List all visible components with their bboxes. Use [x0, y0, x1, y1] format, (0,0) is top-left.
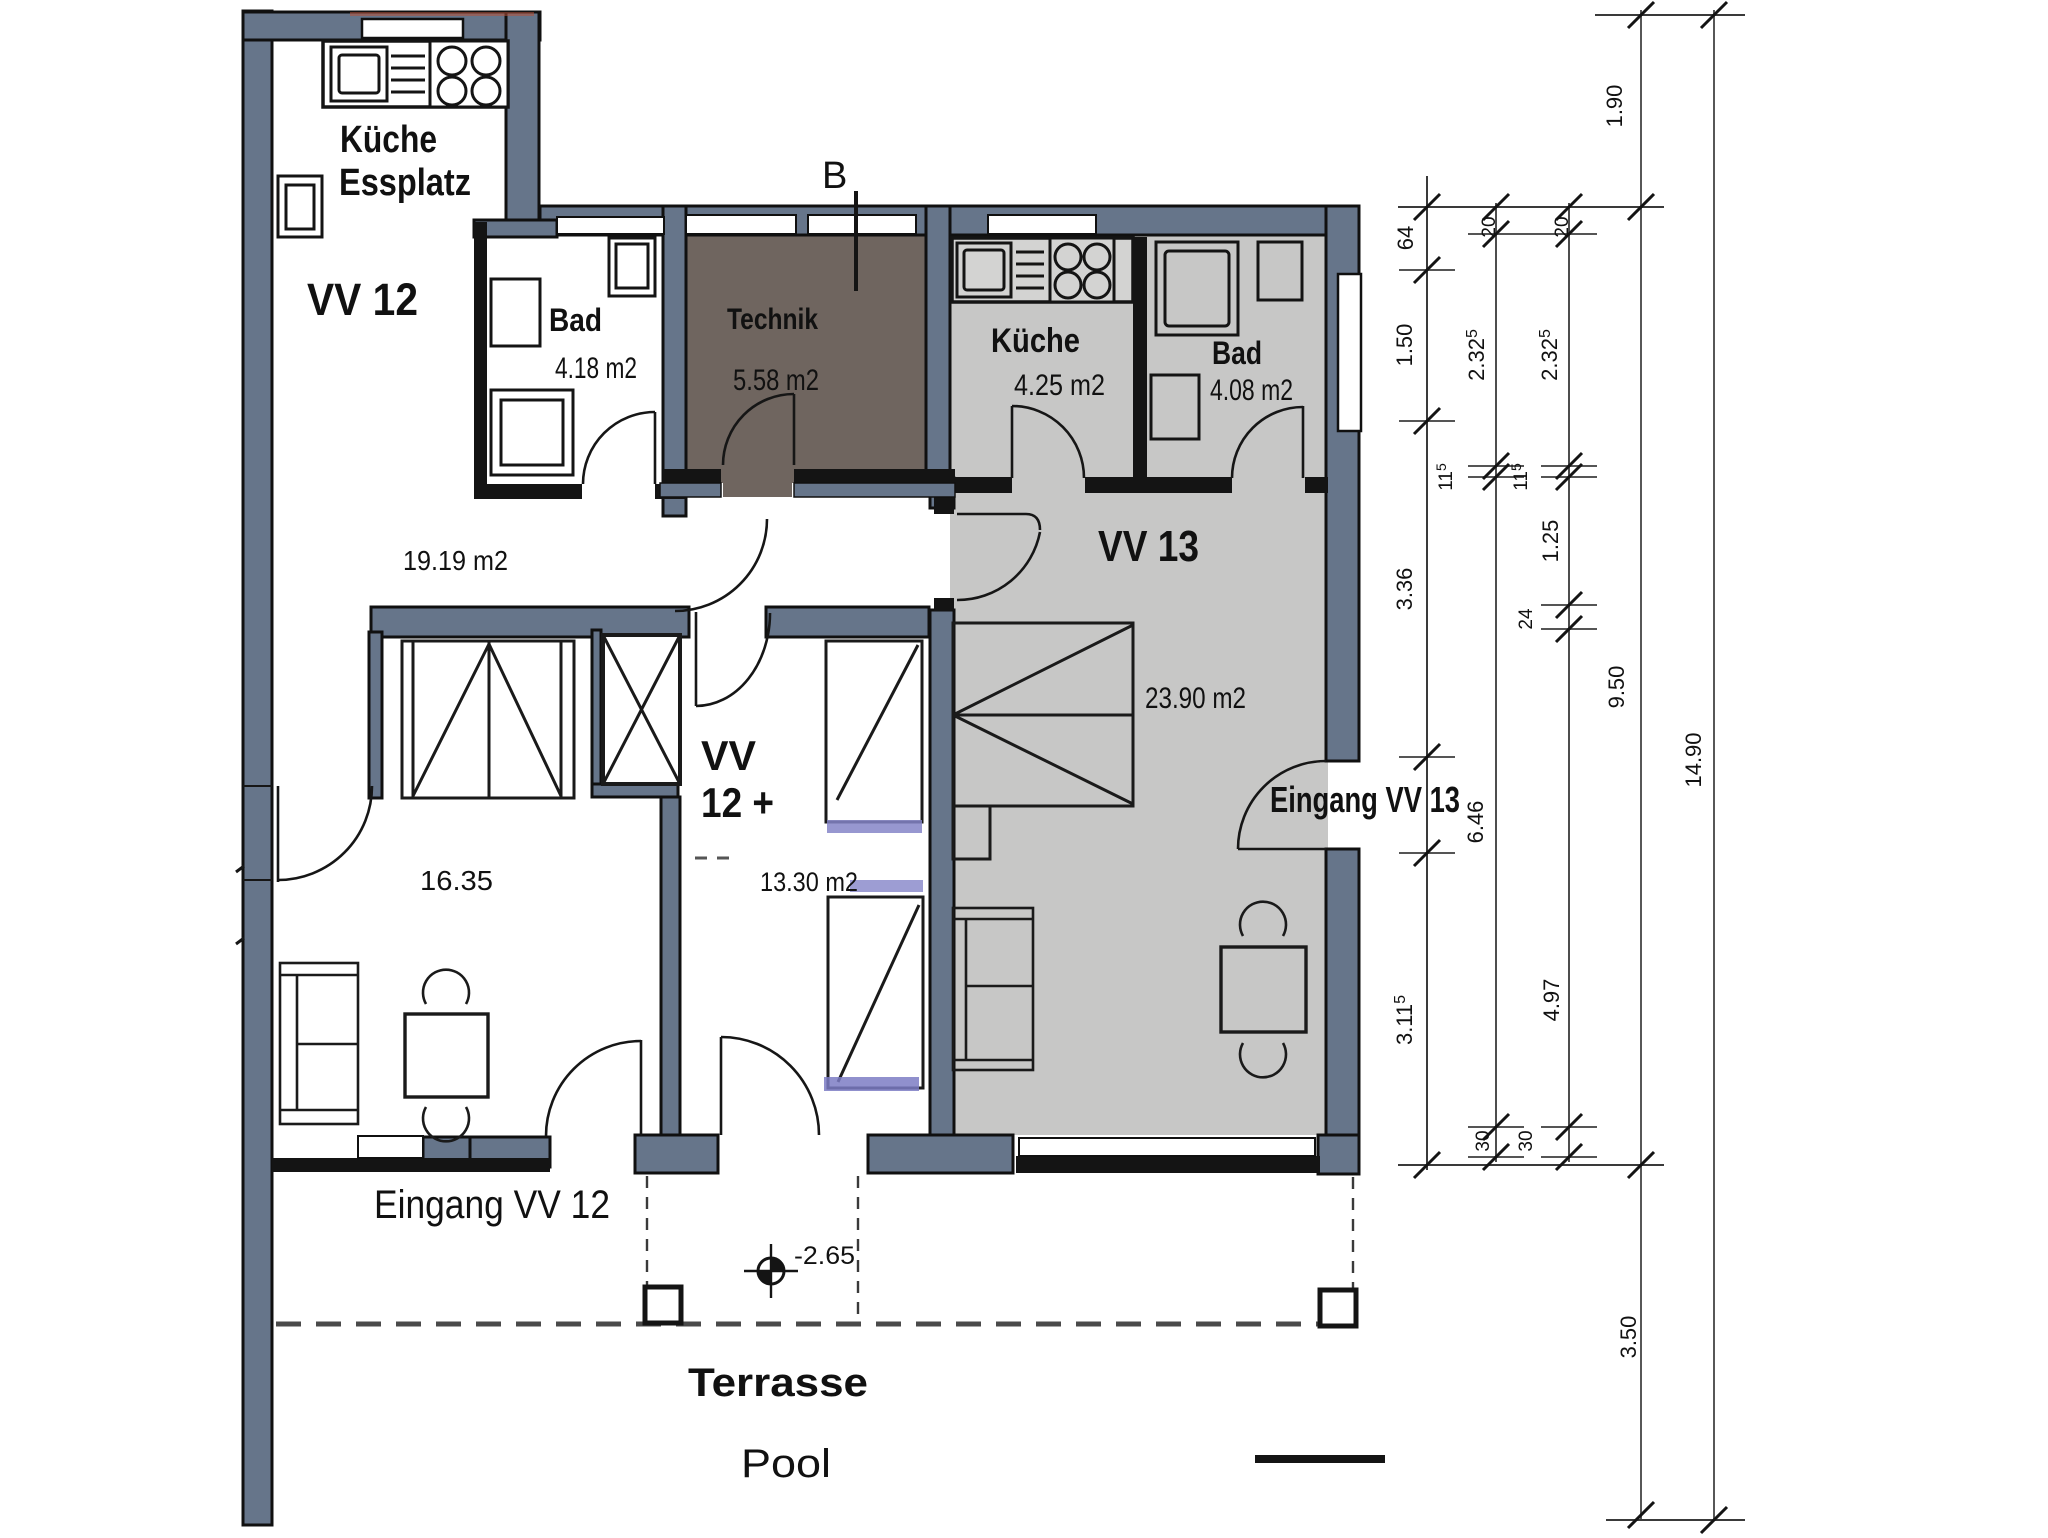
svg-text:Pool: Pool [741, 1442, 831, 1486]
svg-text:Terrasse: Terrasse [688, 1361, 868, 1405]
svg-text:Bad: Bad [549, 302, 602, 338]
svg-text:30: 30 [1473, 1130, 1494, 1151]
svg-text:1.25: 1.25 [1538, 520, 1563, 563]
svg-text:Eingang VV 12: Eingang VV 12 [374, 1183, 610, 1227]
svg-text:6.46: 6.46 [1463, 801, 1488, 844]
svg-text:-2.65: -2.65 [794, 1242, 855, 1270]
svg-text:9.50: 9.50 [1604, 666, 1629, 709]
svg-text:5.58 m2: 5.58 m2 [733, 364, 819, 397]
svg-text:VV 13: VV 13 [1098, 522, 1199, 571]
svg-text:20: 20 [1479, 216, 1500, 237]
svg-text:VV: VV [701, 732, 756, 779]
svg-text:14.90: 14.90 [1681, 732, 1706, 787]
svg-text:4.08 m2: 4.08 m2 [1210, 374, 1293, 407]
svg-text:VV 12: VV 12 [307, 274, 418, 325]
svg-text:4.18 m2: 4.18 m2 [555, 352, 637, 385]
svg-text:23.90 m2: 23.90 m2 [1145, 682, 1246, 715]
svg-text:Küche: Küche [340, 119, 437, 161]
svg-text:Essplatz: Essplatz [339, 162, 471, 204]
svg-text:Technik: Technik [727, 303, 818, 336]
svg-text:20: 20 [1552, 216, 1573, 237]
svg-text:Küche: Küche [991, 322, 1080, 360]
svg-text:64: 64 [1393, 226, 1418, 250]
svg-text:4.97: 4.97 [1539, 979, 1564, 1022]
svg-text:24: 24 [1516, 608, 1537, 630]
svg-text:16.35: 16.35 [420, 865, 493, 896]
svg-text:12 +: 12 + [701, 779, 774, 826]
svg-text:4.25 m2: 4.25 m2 [1014, 369, 1105, 402]
svg-text:3.50: 3.50 [1616, 1316, 1641, 1359]
svg-text:19.19 m2: 19.19 m2 [403, 545, 508, 576]
svg-text:1.90: 1.90 [1602, 85, 1627, 128]
svg-text:Eingang VV 13: Eingang VV 13 [1270, 779, 1460, 820]
svg-text:1.50: 1.50 [1392, 324, 1417, 367]
svg-text:B: B [822, 155, 847, 197]
svg-text:30: 30 [1516, 1130, 1537, 1151]
svg-text:3.36: 3.36 [1392, 568, 1417, 611]
svg-text:13.30 m2: 13.30 m2 [760, 867, 858, 897]
svg-text:Bad: Bad [1212, 335, 1262, 371]
